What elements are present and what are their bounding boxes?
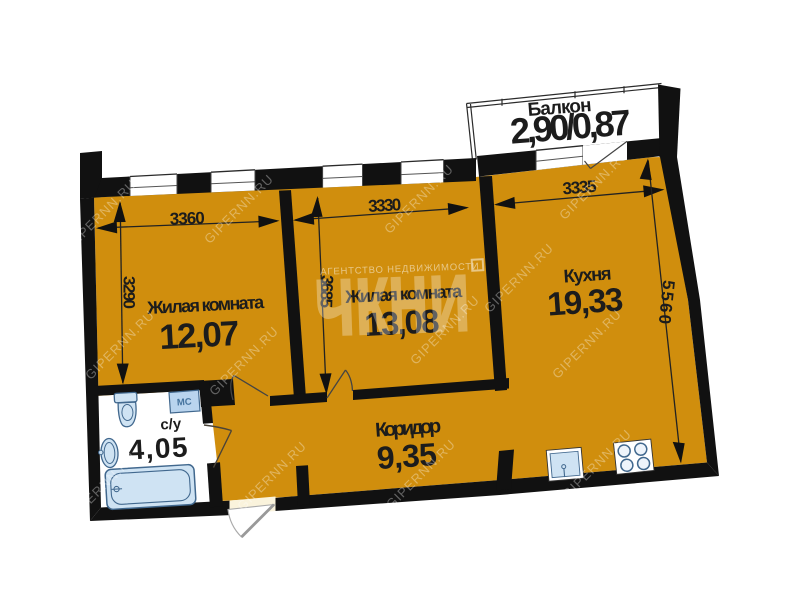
svg-text:чкни: чкни: [312, 235, 473, 360]
svg-text:МС: МС: [177, 396, 193, 408]
svg-text:3290: 3290: [120, 276, 139, 309]
svg-text:с/у: с/у: [160, 415, 182, 433]
svg-text:12,07: 12,07: [158, 314, 240, 357]
svg-text:3360: 3360: [169, 208, 205, 228]
